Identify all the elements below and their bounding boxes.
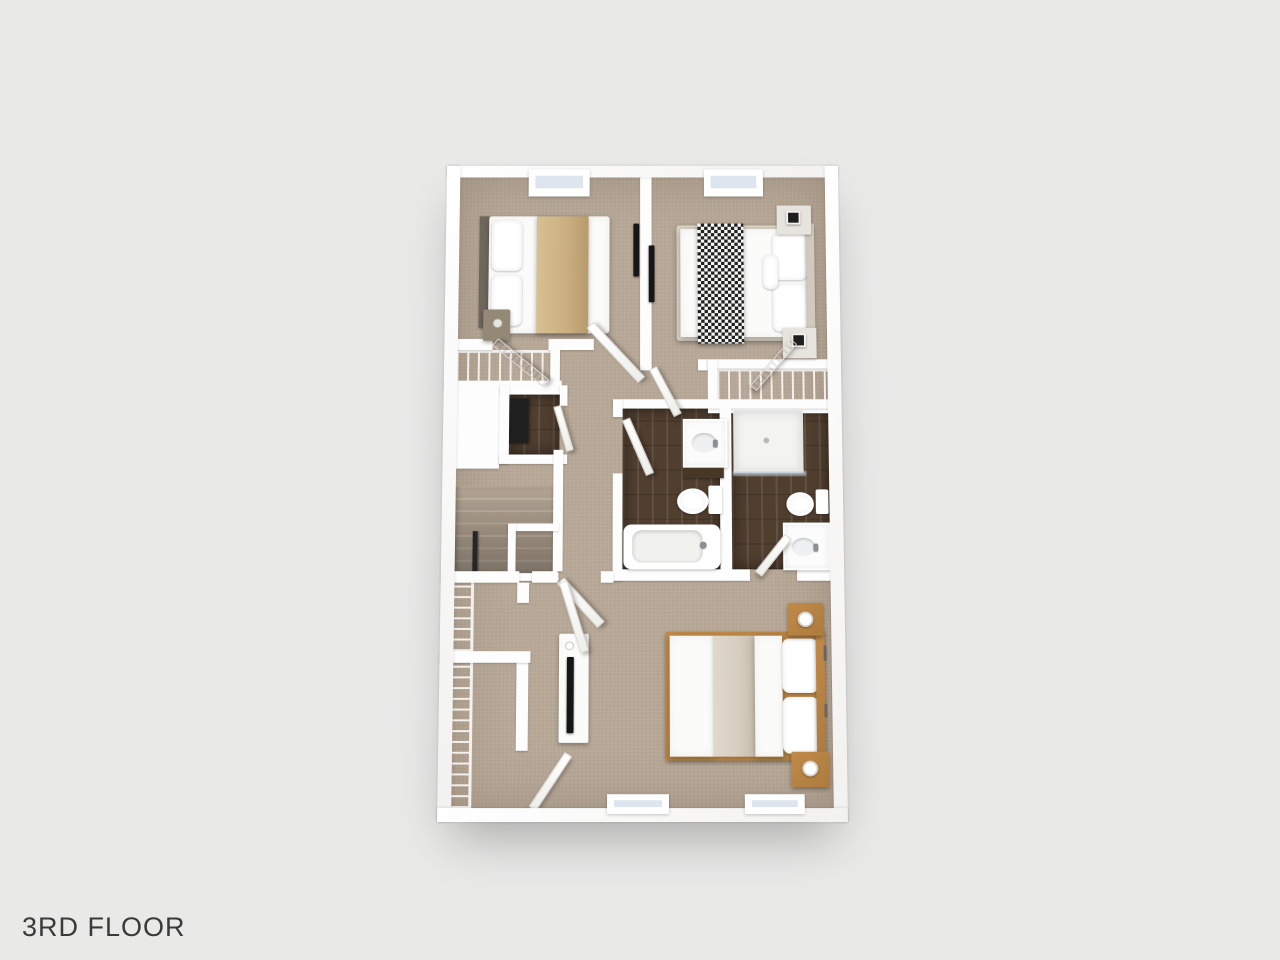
- wall-bath-west-a: [613, 399, 623, 417]
- primary-bed-duvet: [670, 636, 714, 757]
- primary-tv-on-dresser: [567, 657, 574, 733]
- floor-plan: [437, 166, 848, 822]
- wall-bath-south-b: [797, 569, 832, 580]
- wall-art: [824, 704, 827, 718]
- ensuite-shower-glass: [734, 471, 806, 475]
- bedroom3-lamp: [786, 211, 800, 225]
- wall-bath-south-a: [613, 569, 750, 580]
- wall-chase-block: [456, 382, 500, 468]
- bedroom3-headboard: [806, 224, 815, 343]
- hall-bath-toilet-bowl: [677, 488, 708, 514]
- hall-bath-tub-basin: [632, 530, 703, 562]
- primary-lamp: [798, 612, 814, 627]
- ensuite-shower-drain: [763, 438, 769, 444]
- hall-bath-faucet: [713, 439, 718, 447]
- primary-bed-sheet: [754, 636, 783, 757]
- wall-laundry-north: [500, 385, 568, 394]
- bedroom2-window-glass: [534, 175, 584, 189]
- hall-bath-tub-faucet: [700, 542, 707, 549]
- hall-bath-shelf: [683, 468, 724, 478]
- stacked-washer-dryer: [509, 398, 529, 443]
- bedroom3-lumbar-pillow: [763, 255, 779, 290]
- primary-dresser-knob: [565, 641, 574, 650]
- primary-bed-runner: [713, 636, 755, 757]
- floor-plan-render: 3RD FLOOR: [0, 0, 1280, 960]
- bedroom2-throw-blanket: [536, 216, 589, 333]
- wall-bath-north: [613, 399, 829, 408]
- wall-closet-vert-b: [516, 651, 529, 751]
- bedroom2-tv: [633, 224, 639, 277]
- floor-label: 3RD FLOOR: [22, 912, 186, 943]
- wall-art: [824, 645, 827, 661]
- wall-laundry-left: [499, 385, 510, 464]
- ensuite-toilet-tank: [816, 489, 829, 514]
- wall-hall-vertical: [553, 450, 564, 571]
- bedroom2-pillow: [492, 220, 523, 271]
- ensuite-toilet-bowl: [786, 492, 814, 516]
- exterior-wall-top: [447, 166, 838, 178]
- ensuite-faucet: [813, 544, 818, 552]
- bedroom3-pillow: [773, 284, 808, 332]
- ensuite-sink: [792, 538, 816, 556]
- wall-br2-south-b: [548, 339, 593, 350]
- wall-laundry-right-stub: [560, 385, 568, 406]
- wall-primary-north-stub: [601, 571, 614, 582]
- bedroom3-window-glass: [710, 175, 758, 189]
- wall-primary-north-a: [532, 571, 558, 582]
- primary-window-glass: [751, 799, 799, 808]
- primary-window-glass: [613, 799, 663, 808]
- lower-walkin-closet-shelving: [451, 663, 473, 808]
- stair-handrail: [472, 531, 477, 573]
- primary-pillow: [783, 697, 819, 754]
- upper-walkin-closet-shelving: [453, 583, 474, 651]
- primary-lamp: [802, 761, 818, 777]
- primary-pillow: [782, 639, 818, 693]
- wall-bath-west-b: [613, 473, 623, 580]
- bedroom3-check-blanket: [697, 224, 744, 344]
- bedroom3-tv: [649, 245, 655, 302]
- hall-bath-toilet-tank: [708, 486, 722, 514]
- bedroom2-nightstand-cup: [493, 319, 503, 328]
- wall-closet-vert-a: [517, 583, 529, 603]
